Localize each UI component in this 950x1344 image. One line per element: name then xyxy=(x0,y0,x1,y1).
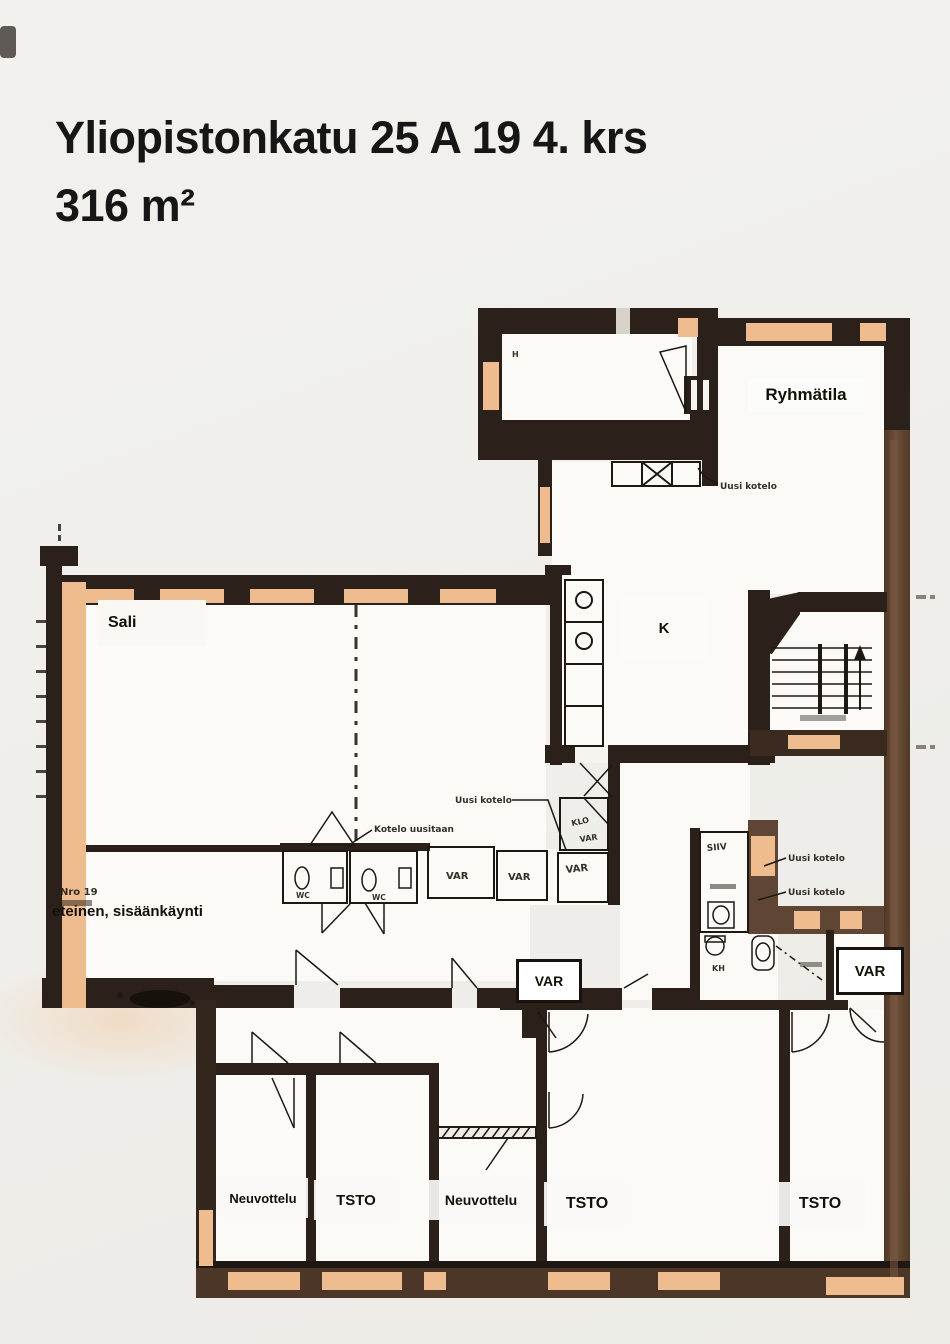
wc-note-2: WC xyxy=(372,893,386,902)
room-label-neuvottelu-2: Neuvottelu xyxy=(428,1180,534,1220)
plan-title: Yliopistonkatu 25 A 19 4. krs 316 m² xyxy=(55,104,855,241)
room-label-sali: Sali xyxy=(98,600,206,646)
room-label-var-middle: VAR xyxy=(516,959,582,1003)
var-note-1: VAR xyxy=(446,871,469,882)
scan-corner-mark xyxy=(0,26,16,58)
top-left-room-floor xyxy=(502,332,692,432)
hatched-wall xyxy=(438,1127,536,1138)
room-label-ryhmatila: Ryhmätila xyxy=(748,378,864,412)
h-mark: H xyxy=(512,350,519,359)
room-label-entrance: eteinen, sisäänkäynti xyxy=(52,898,203,924)
room-label-tsto-1: TSTO xyxy=(314,1180,398,1220)
room-label-tsto-2: TSTO xyxy=(544,1182,630,1226)
room-label-var-right: VAR xyxy=(836,947,904,995)
kotelo-uusitaan-note: Kotelo uusitaan xyxy=(374,825,454,835)
room-label-neuvottelu-1: Neuvottelu xyxy=(218,1178,308,1218)
kh-note: KH xyxy=(712,964,725,973)
uusi-kotelo-note-2: Uusi kotelo xyxy=(455,796,512,806)
page: Nro 19 H Uusi kotelo Uusi kotelo Kotelo … xyxy=(0,0,950,1344)
unit-number-note: Nro 19 xyxy=(60,887,98,898)
uusi-kotelo-note-1: Uusi kotelo xyxy=(720,482,777,492)
wc-note-1: WC xyxy=(296,891,310,900)
room-label-tsto-3: TSTO xyxy=(774,1182,866,1226)
siiv-note: SIIV xyxy=(706,842,727,854)
dimension-dashes xyxy=(916,595,935,749)
uusi-kotelo-note-3: Uusi kotelo xyxy=(788,854,845,864)
uusi-kotelo-note-4: Uusi kotelo xyxy=(788,888,845,898)
plan-title-line1: Yliopistonkatu 25 A 19 4. krs xyxy=(55,104,855,172)
room-label-kitchen: K xyxy=(618,598,710,658)
klo-note: KLO xyxy=(571,815,590,828)
ink-blob xyxy=(130,990,190,1008)
var-note-4: VAR xyxy=(579,833,598,844)
plan-title-line2: 316 m² xyxy=(55,172,855,240)
var-note-2: VAR xyxy=(508,872,531,883)
